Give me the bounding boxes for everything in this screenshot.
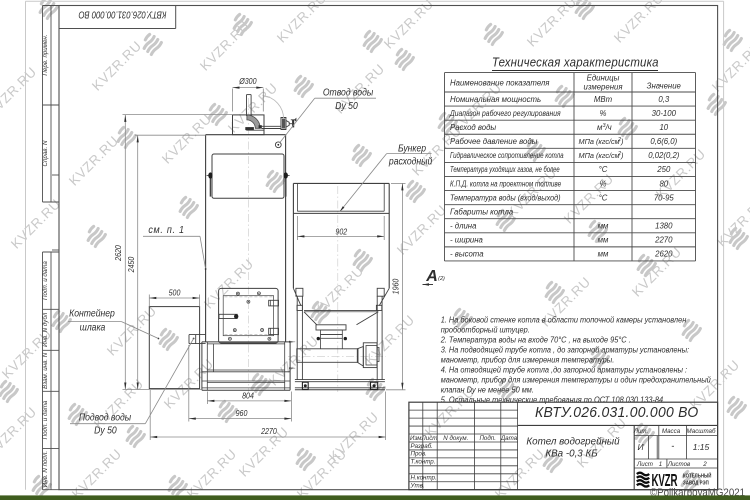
- svg-text:2. Температура воды на входе: 2. Температура воды на входе 70°С , на в…: [440, 335, 631, 345]
- svg-text:клапан Dу не менее 50 мм.: клапан Dу не менее 50 мм.: [441, 385, 534, 395]
- svg-text:А: А: [425, 268, 438, 285]
- svg-text:Отвод воды: Отвод воды: [323, 87, 374, 98]
- svg-text:N докум.: N докум.: [443, 435, 468, 442]
- svg-text:0,02(0,2): 0,02(0,2): [648, 151, 680, 160]
- svg-text:И: И: [637, 442, 644, 452]
- svg-text:80: 80: [659, 179, 668, 188]
- svg-text:0,6(6,0): 0,6(6,0): [650, 137, 677, 146]
- svg-text:мм: мм: [598, 222, 609, 231]
- svg-text:500: 500: [169, 288, 181, 298]
- svg-text:2620: 2620: [113, 245, 123, 262]
- svg-text:1380: 1380: [655, 222, 673, 231]
- svg-text:70-95: 70-95: [654, 193, 675, 202]
- svg-text:измерения: измерения: [583, 83, 623, 92]
- svg-text:Температура воды (вход/выход): Температура воды (вход/выход): [450, 193, 561, 202]
- svg-text:см. п. 1: см. п. 1: [148, 225, 184, 237]
- svg-text:манометр, прибор для измерения: манометр, прибор для измерения температу…: [441, 355, 615, 365]
- svg-text:КВТУ.026.031.00.000 ВО: КВТУ.026.031.00.000 ВО: [79, 9, 167, 20]
- svg-text:Подвод воды: Подвод воды: [79, 412, 131, 423]
- svg-text:расходный: расходный: [388, 156, 432, 167]
- svg-text:Dу 50: Dу 50: [94, 425, 117, 436]
- svg-text:4. На отводящей трубе котла ,: 4. На отводящей трубе котла ,до запорной…: [441, 365, 687, 375]
- svg-text:Диапазон рабочего регулировани: Диапазон рабочего регулирования: [449, 108, 561, 118]
- svg-text:Взам. инв. N: Взам. инв. N: [42, 352, 49, 389]
- svg-text:КВа -0,3 КБ: КВа -0,3 КБ: [545, 449, 598, 460]
- svg-text:Справ. N: Справ. N: [42, 140, 49, 166]
- svg-text:2450: 2450: [126, 256, 136, 273]
- svg-text:°С: °С: [599, 193, 608, 202]
- svg-text:%: %: [600, 179, 607, 188]
- svg-text:Температура уходящих газов, не: Температура уходящих газов, не более: [450, 165, 560, 174]
- svg-text:30-100: 30-100: [652, 109, 677, 118]
- svg-text:Бункер: Бункер: [398, 143, 426, 154]
- svg-text:Разраб.: Разраб.: [411, 443, 433, 450]
- svg-text:%: %: [600, 109, 607, 118]
- svg-text:Подп. и дата: Подп. и дата: [42, 261, 49, 300]
- svg-text:пробоотборный штуцер.: пробоотборный штуцер.: [441, 325, 530, 335]
- svg-text:Изм: Изм: [410, 435, 422, 442]
- svg-text:3. На подводящей трубе котла: 3. На подводящей трубе котла , до запорн…: [441, 345, 689, 355]
- svg-text:Подп. и дата: Подп. и дата: [42, 400, 49, 439]
- svg-text:Перв. примен.: Перв. примен.: [42, 34, 49, 75]
- svg-text:КВТУ.026.031.00.000 ВО: КВТУ.026.031.00.000 ВО: [535, 405, 698, 422]
- svg-text:Номинальная мощность: Номинальная мощность: [450, 95, 541, 104]
- svg-text:): ): [620, 151, 623, 160]
- svg-text:мм: мм: [598, 250, 609, 259]
- svg-text:КОТЕЛЬНЫЙ: КОТЕЛЬНЫЙ: [683, 471, 712, 480]
- svg-text:МПа (кгс/см: МПа (кгс/см: [579, 137, 620, 146]
- svg-text:2: 2: [702, 461, 707, 468]
- svg-text:Лист: Лист: [636, 461, 653, 468]
- svg-text:°С: °С: [599, 165, 608, 174]
- svg-text:Dу 50: Dу 50: [335, 101, 358, 112]
- svg-text:902: 902: [335, 227, 347, 237]
- svg-text:Гидравлическое сопротивление к: Гидравлическое сопротивление котла: [450, 151, 564, 160]
- svg-text:Инв. N дубл: Инв. N дубл: [42, 312, 49, 347]
- svg-text:1960: 1960: [391, 278, 401, 294]
- svg-text:Т.контр.: Т.контр.: [411, 459, 436, 466]
- svg-text:/ч: /ч: [605, 123, 612, 132]
- svg-text:Котел водогрейный: Котел водогрейный: [526, 437, 620, 448]
- svg-text:-: -: [671, 441, 674, 451]
- svg-text:шлака: шлака: [80, 322, 106, 333]
- svg-text:Дата: Дата: [500, 435, 518, 442]
- svg-text:0,3: 0,3: [658, 95, 670, 104]
- svg-text:Листов: Листов: [667, 461, 691, 468]
- svg-text:Пров.: Пров.: [411, 451, 427, 458]
- svg-text:): ): [620, 137, 623, 146]
- svg-text:804: 804: [242, 391, 254, 401]
- svg-text:Габариты котла: Габариты котла: [450, 207, 514, 216]
- svg-text:1:15: 1:15: [693, 442, 710, 452]
- svg-text:- ширина: - ширина: [450, 236, 484, 245]
- svg-text:Подп.: Подп.: [479, 435, 495, 442]
- svg-text:манометр, прибор для измерения: манометр, прибор для измерения температу…: [441, 375, 712, 385]
- svg-text:Ø300: Ø300: [238, 76, 257, 86]
- svg-text:Рабочее давление воды: Рабочее давление воды: [450, 137, 538, 146]
- svg-text:МПа (кгс/см: МПа (кгс/см: [579, 151, 620, 160]
- svg-text:- длина: - длина: [450, 222, 477, 231]
- svg-text:250: 250: [656, 165, 671, 174]
- svg-text:Масштаб: Масштаб: [687, 428, 716, 435]
- svg-text:Техническая характеристика: Техническая характеристика: [492, 55, 659, 70]
- svg-text:2270: 2270: [260, 427, 277, 437]
- svg-text:мм: мм: [598, 236, 609, 245]
- svg-text:Лит.: Лит.: [633, 428, 649, 435]
- svg-text:Контейнер: Контейнер: [69, 308, 115, 319]
- svg-text:2270: 2270: [654, 236, 673, 245]
- svg-text:Наименование показателя: Наименование показателя: [450, 79, 550, 88]
- svg-text:Лист: Лист: [421, 435, 438, 442]
- svg-text:Единицы: Единицы: [587, 74, 620, 83]
- svg-text:Расход воды: Расход воды: [450, 123, 496, 132]
- svg-text:2620: 2620: [654, 250, 673, 259]
- svg-text:960: 960: [236, 408, 248, 418]
- svg-text:Инв. N подл.: Инв. N подл.: [42, 451, 49, 487]
- svg-text:К.П.Д. котла на проектном топл: К.П.Д. котла на проектном топливе: [450, 180, 561, 189]
- svg-text:- высота: - высота: [450, 250, 484, 259]
- svg-text:1: 1: [659, 461, 662, 468]
- svg-text:Значение: Значение: [647, 82, 682, 91]
- svg-text:Н.контр.: Н.контр.: [411, 475, 437, 482]
- svg-text:МВт: МВт: [594, 95, 613, 104]
- svg-text:10: 10: [659, 123, 668, 132]
- svg-text:(2): (2): [438, 276, 445, 282]
- svg-text:Масса: Масса: [662, 428, 681, 435]
- svg-text:Утв.: Утв.: [410, 483, 425, 490]
- svg-text:1. На боковой стенке котла в: 1. На боковой стенке котла в области топ…: [441, 315, 687, 325]
